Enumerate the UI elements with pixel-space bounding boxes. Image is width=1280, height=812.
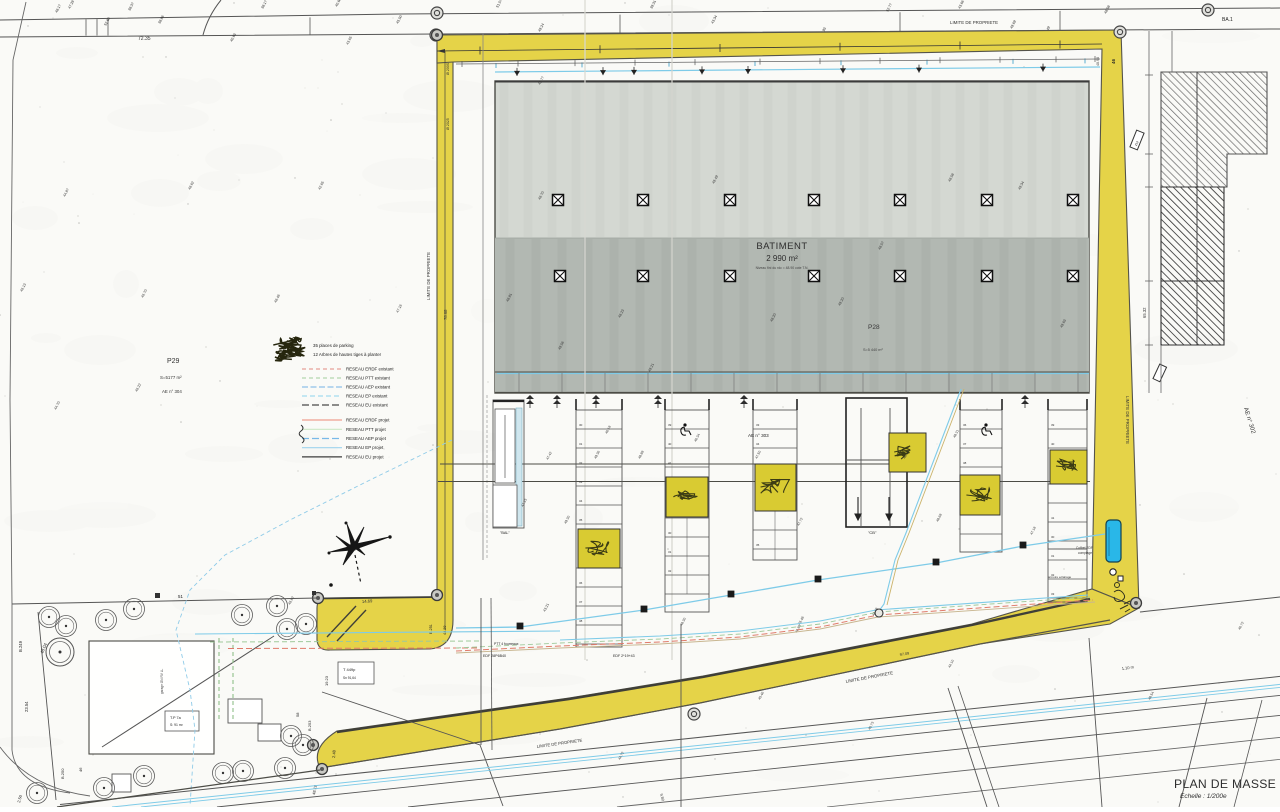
svg-text:37: 37 [579, 600, 583, 604]
svg-text:LIMITE DE PROPRIETE: LIMITE DE PROPRIETE [950, 20, 998, 25]
svg-text:14.69: 14.69 [362, 598, 373, 604]
svg-text:RESEAU AEP projet: RESEAU AEP projet [346, 436, 387, 441]
svg-text:RESEAU EP projet: RESEAU EP projet [346, 445, 384, 450]
svg-text:RESEAU PTT existant: RESEAU PTT existant [346, 376, 391, 381]
svg-text:33: 33 [1051, 592, 1055, 596]
svg-text:Ø 2025: Ø 2025 [446, 118, 450, 130]
svg-text:Echelle : 1/200e: Echelle : 1/200e [1180, 793, 1227, 800]
svg-text:P29: P29 [167, 358, 180, 365]
svg-text:46: 46 [1111, 59, 1116, 64]
svg-text:BATIMENT: BATIMENT [756, 241, 807, 252]
svg-text:35 places de parking: 35 places de parking [313, 343, 354, 348]
svg-text:Sn 91,64: Sn 91,64 [343, 676, 356, 680]
svg-text:RESEAU EU existant: RESEAU EU existant [346, 403, 389, 408]
svg-text:35: 35 [579, 518, 583, 522]
svg-text:LIMITE DE PROPRIETE: LIMITE DE PROPRIETE [426, 252, 431, 300]
svg-text:72.35: 72.35 [138, 36, 151, 42]
svg-text:38: 38 [963, 461, 967, 465]
svg-text:RESEAU EP existant: RESEAU EP existant [346, 394, 388, 399]
svg-text:51: 51 [178, 594, 183, 599]
svg-text:41: 41 [1051, 516, 1055, 520]
svg-text:PLAN DE MASSE: PLAN DE MASSE [1174, 777, 1276, 791]
svg-text:12 Arbres de hautes tiges à pl: 12 Arbres de hautes tiges à planter [313, 352, 382, 357]
svg-text:78.68: 78.68 [443, 309, 448, 320]
svg-text:40: 40 [668, 442, 672, 446]
svg-text:39: 39 [1051, 423, 1055, 427]
svg-text:39: 39 [668, 423, 672, 427]
svg-text:30: 30 [668, 531, 672, 535]
svg-text:40.98: 40.98 [1096, 57, 1100, 66]
svg-text:36: 36 [963, 423, 967, 427]
svg-text:46: 46 [78, 767, 83, 772]
svg-text:2 990 m²: 2 990 m² [766, 254, 798, 263]
svg-text:S: 91 m²: S: 91 m² [170, 723, 184, 727]
svg-text:BA.1: BA.1 [1222, 17, 1233, 23]
svg-text:34: 34 [579, 499, 583, 503]
svg-text:41: 41 [668, 461, 672, 465]
svg-text:30: 30 [1051, 535, 1055, 539]
svg-text:33: 33 [756, 423, 760, 427]
svg-text:RESEAU ERDF existant: RESEAU ERDF existant [346, 367, 394, 372]
svg-text:2.48: 2.48 [331, 749, 337, 758]
svg-text:31: 31 [1051, 554, 1055, 558]
svg-text:32: 32 [1051, 573, 1055, 577]
svg-text:31: 31 [668, 550, 672, 554]
svg-text:37: 37 [963, 442, 967, 446]
svg-text:36: 36 [579, 581, 583, 585]
svg-text:S=5 440 m²: S=5 440 m² [863, 348, 883, 352]
svg-text:Niveau fini du rdc = 48.90 cot: Niveau fini du rdc = 48.90 cote T.N. [756, 266, 809, 270]
svg-text:32: 32 [668, 569, 672, 573]
svg-text:34: 34 [756, 442, 760, 446]
svg-text:B.249: B.249 [18, 640, 23, 652]
svg-text:RESEAU AEP existant: RESEAU AEP existant [346, 385, 391, 390]
svg-text:Coffret EDF: Coffret EDF [1076, 546, 1093, 550]
svg-text:Ø 200S: Ø 200S [446, 62, 450, 75]
svg-text:RESEAU PTT projet: RESEAU PTT projet [346, 427, 386, 432]
svg-text:T 449p: T 449p [343, 667, 356, 672]
svg-text:garage GN RV LL: garage GN RV LL [160, 668, 164, 694]
svg-text:48.29: 48.29 [443, 625, 447, 635]
svg-text:32: 32 [579, 461, 583, 465]
svg-text:B.250: B.250 [60, 768, 65, 779]
svg-text:31: 31 [579, 442, 583, 446]
svg-text:comptage: comptage [1078, 551, 1092, 555]
svg-text:"CB": "CB" [868, 530, 877, 535]
svg-text:"BAL": "BAL" [500, 531, 511, 535]
svg-text:RESEAU ERDF projet: RESEAU ERDF projet [346, 418, 390, 423]
svg-text:P28: P28 [868, 324, 880, 331]
svg-text:AE n° 304: AE n° 304 [162, 389, 182, 394]
svg-text:38: 38 [579, 619, 583, 623]
svg-text:23.54: 23.54 [24, 701, 29, 712]
svg-text:EDF 28P6B40: EDF 28P6B40 [483, 654, 506, 658]
svg-text:30: 30 [579, 423, 583, 427]
svg-text:35: 35 [756, 543, 760, 547]
svg-text:EDF 2*19+43: EDF 2*19+43 [613, 654, 635, 658]
svg-text:RESEAU EU projet: RESEAU EU projet [346, 454, 384, 459]
svg-text:58: 58 [295, 712, 300, 717]
svg-text:LIMITE DE PROPRIETE: LIMITE DE PROPRIETE [1125, 396, 1130, 444]
svg-text:40: 40 [1051, 442, 1055, 446]
svg-text:33: 33 [579, 480, 583, 484]
svg-text:S=5177 m²: S=5177 m² [160, 375, 182, 380]
svg-text:T.P 7a: T.P 7a [170, 716, 182, 720]
svg-text:PTT 4 fourreaux: PTT 4 fourreaux [494, 642, 519, 646]
svg-text:AE n° 303: AE n° 303 [748, 433, 769, 438]
svg-text:19.23: 19.23 [324, 675, 329, 686]
svg-text:B.253: B.253 [307, 720, 312, 731]
svg-text:65.32: 65.32 [1142, 307, 1147, 318]
